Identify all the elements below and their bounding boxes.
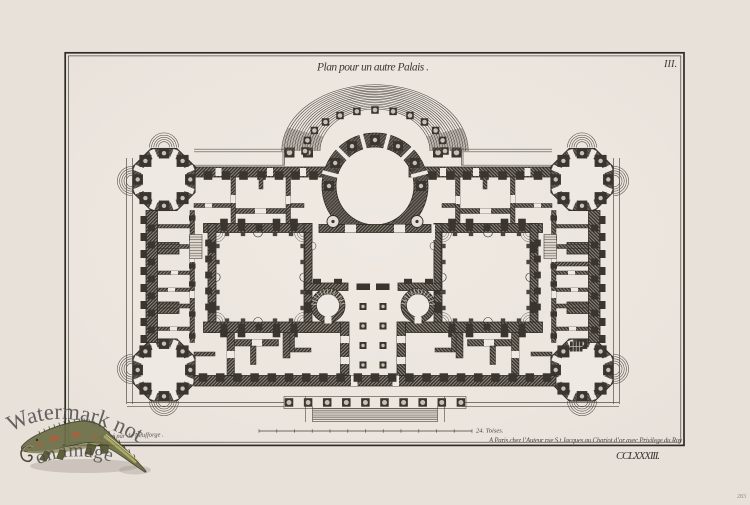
svg-text:Plan pour un autre Palais .: Plan pour un autre Palais .: [316, 62, 429, 74]
svg-text:283: 283: [737, 494, 746, 500]
svg-text:CCLXXXIII.: CCLXXXIII.: [616, 450, 660, 462]
svg-text:24. Toises.: 24. Toises.: [476, 428, 504, 435]
svg-text:A Paris chez l’Auteur rue S.t: A Paris chez l’Auteur rue S.t Jacques au…: [488, 438, 683, 445]
svg-text:III.: III.: [663, 59, 677, 70]
